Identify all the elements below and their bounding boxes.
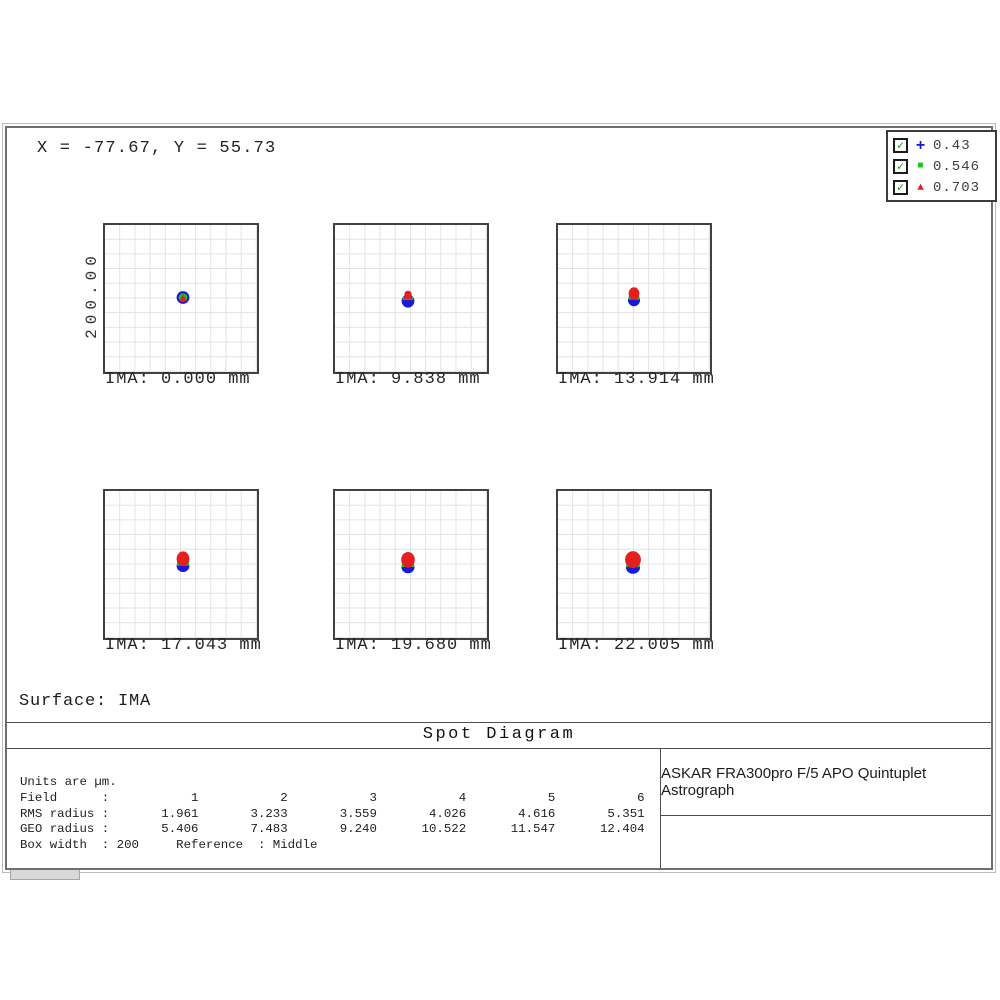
ima-label-field-6: IMA: 22.005 mm — [558, 636, 710, 655]
divider-horizontal — [660, 815, 991, 816]
plot-title: Spot Diagram — [7, 725, 991, 744]
window-edge-tab — [10, 870, 80, 880]
ima-label-field-5: IMA: 19.680 mm — [335, 636, 487, 655]
spot-diagram-field-1 — [103, 223, 259, 374]
legend-wavelength-label: 0.43 — [933, 138, 971, 154]
spot-diagram-window: X = -77.67, Y = 55.73 ✓+0.43✓■0.546✓▲0.7… — [5, 126, 993, 870]
triangle-icon: ▲ — [914, 182, 927, 194]
scale-bar-label: 200.00 — [83, 228, 101, 362]
plus-icon: + — [914, 137, 927, 155]
wavelength-legend: ✓+0.43✓■0.546✓▲0.703 — [886, 130, 997, 202]
legend-checkbox-0.546[interactable]: ✓ — [893, 159, 908, 174]
stats-units-line: Units are µm. — [20, 775, 645, 791]
stats-field-row: Field : 1 2 3 4 5 6 — [20, 791, 645, 807]
spot-diagram-field-3 — [556, 223, 712, 374]
ima-label-field-4: IMA: 17.043 mm — [105, 636, 257, 655]
legend-wavelength-label: 0.546 — [933, 159, 980, 175]
stats-rms-row: RMS radius : 1.961 3.233 3.559 4.026 4.6… — [20, 807, 645, 823]
stats-boxwidth-row: Box width : 200 Reference : Middle — [20, 838, 645, 854]
square-icon: ■ — [914, 161, 927, 172]
legend-wavelength-label: 0.703 — [933, 180, 980, 196]
spot-statistics-table: Units are µm. Field : 1 2 3 4 5 6 RMS ra… — [20, 775, 645, 854]
legend-item-0.703: ✓▲0.703 — [893, 177, 991, 198]
surface-label: Surface: IMA — [19, 692, 151, 711]
lens-title-cell: ASKAR FRA300pro F/5 APO Quintuplet Astro… — [661, 748, 991, 815]
spot-diagram-field-5 — [333, 489, 489, 640]
ima-label-field-2: IMA: 9.838 mm — [335, 370, 487, 389]
legend-item-0.43: ✓+0.43 — [893, 135, 991, 156]
ima-label-field-1: IMA: 0.000 mm — [105, 370, 257, 389]
stats-geo-row: GEO radius : 5.406 7.483 9.240 10.522 11… — [20, 822, 645, 838]
ima-label-field-3: IMA: 13.914 mm — [558, 370, 710, 389]
lens-title: ASKAR FRA300pro F/5 APO Quintuplet Astro… — [661, 765, 991, 799]
screenshot-background: X = -77.67, Y = 55.73 ✓+0.43✓■0.546✓▲0.7… — [0, 0, 1000, 1000]
legend-checkbox-0.43[interactable]: ✓ — [893, 138, 908, 153]
spot-diagram-field-4 — [103, 489, 259, 640]
spot-diagram-field-6 — [556, 489, 712, 640]
legend-checkbox-0.703[interactable]: ✓ — [893, 180, 908, 195]
divider-horizontal — [7, 722, 991, 723]
legend-item-0.546: ✓■0.546 — [893, 156, 991, 177]
spot-diagram-field-2 — [333, 223, 489, 374]
cursor-coordinates-readout: X = -77.67, Y = 55.73 — [37, 139, 276, 158]
